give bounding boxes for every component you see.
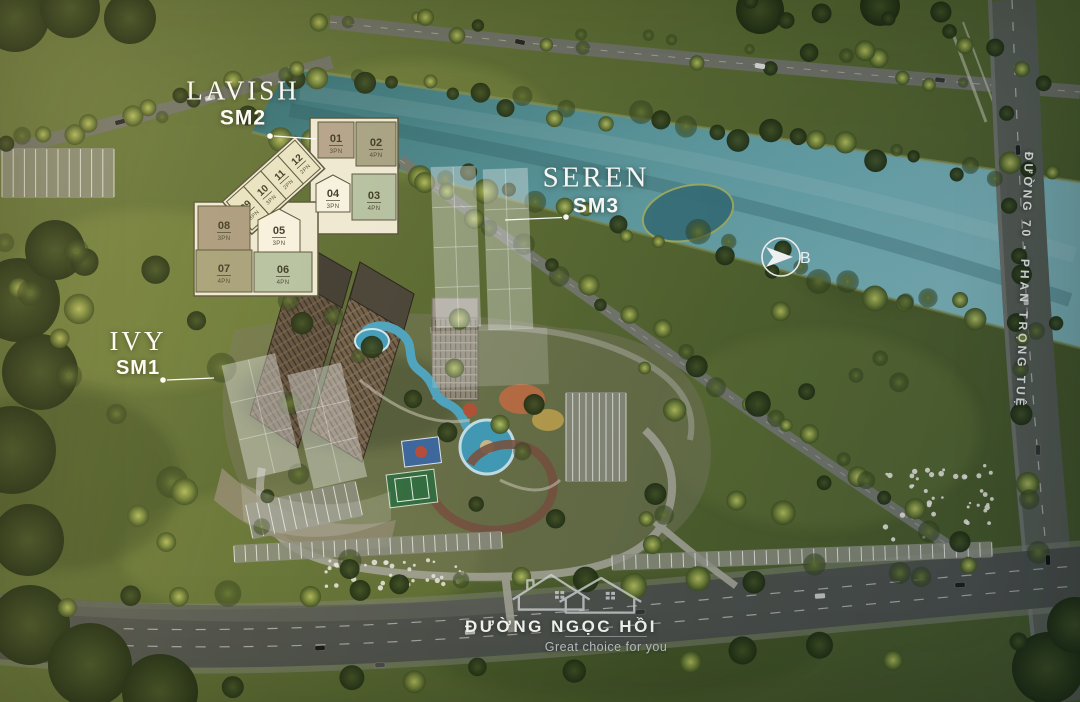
floorplan-lavish[interactable]: 09 3PN 10 3PN 11 2PN 12 2PN 01 [194,118,398,296]
label-tower-ivy[interactable]: IVY SM1 [110,327,167,379]
tower-code-ivy: SM1 [110,358,167,379]
unit-07-number: 07 [218,263,230,275]
tower-name-lavish: LAVISH [186,76,300,104]
tower-code-seren: SM3 [543,196,650,218]
unit-05-number: 05 [273,225,285,237]
unit-07-type: 4PN [218,279,231,285]
leader-dot-lavish [267,133,273,139]
tower-code-lavish: SM2 [186,108,300,130]
label-tower-lavish[interactable]: LAVISH SM2 [186,76,300,129]
unit-05-type: 3PN [273,241,286,247]
unit-04-type: 3PN [327,204,340,210]
ghost-tower-seren[interactable] [425,164,549,388]
unit-04-number: 04 [327,188,340,200]
unit-08-type: 3PN [218,236,231,242]
unit-03-number: 03 [368,190,380,202]
unit-01-type: 3PN [330,149,343,155]
unit-08-number: 08 [218,220,230,232]
masterplan-canvas: 09 3PN 10 3PN 11 2PN 12 2PN 01 [0,0,1080,702]
compass-north-label: B [800,250,811,267]
label-tower-seren[interactable]: SEREN SM3 [543,162,650,217]
unit-02-number: 02 [370,137,382,149]
compass: B [762,238,811,276]
ghost-tower-ivy[interactable] [208,335,397,556]
unit-06-number: 06 [277,264,289,276]
tower-name-seren: SEREN [543,162,650,192]
compass-arrow-icon [766,247,793,267]
unit-02-type: 4PN [370,153,383,159]
tower-name-ivy: IVY [110,327,167,355]
unit-06-type: 4PN [277,280,290,286]
unit-01-number: 01 [330,133,342,145]
unit-03-type: 4PN [368,206,381,212]
